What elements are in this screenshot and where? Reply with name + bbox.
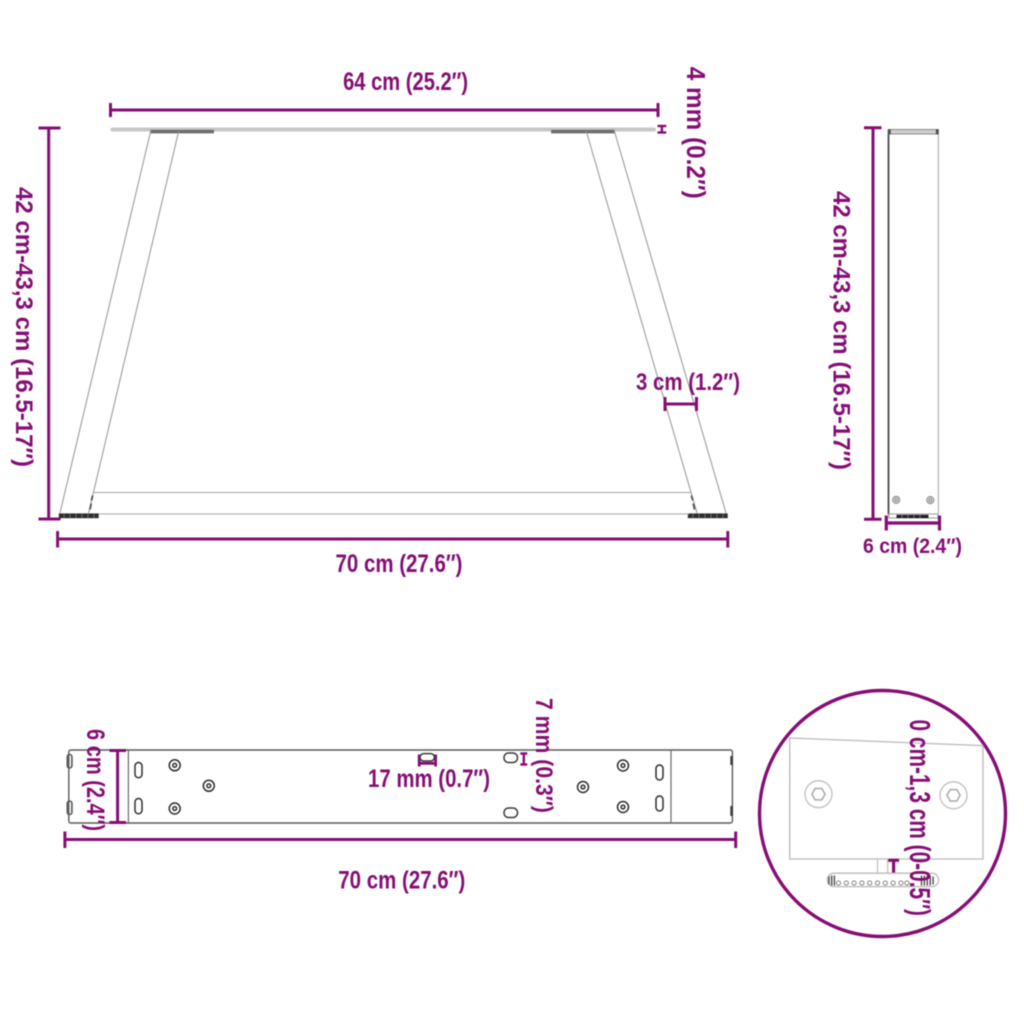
svg-text:6 cm (2.4″): 6 cm (2.4″) [863,534,962,558]
svg-text:7 mm (0.3″): 7 mm (0.3″) [530,698,557,813]
svg-text:3 cm (1.2″): 3 cm (1.2″) [636,369,740,396]
svg-text:17 mm (0.7″): 17 mm (0.7″) [368,765,490,793]
svg-text:42 cm-43,3 cm (16.5-17″): 42 cm-43,3 cm (16.5-17″) [10,187,37,467]
svg-text:4 mm (0.2″): 4 mm (0.2″) [681,67,711,199]
svg-text:64 cm (25.2″): 64 cm (25.2″) [343,68,468,96]
svg-text:6 cm (2.4″): 6 cm (2.4″) [81,729,109,831]
svg-text:70 cm (27.6″): 70 cm (27.6″) [338,867,465,895]
svg-text:0 cm-1,3 cm (0-0.5″): 0 cm-1,3 cm (0-0.5″) [903,720,935,917]
svg-text:42 cm-43,3 cm (16.5-17″): 42 cm-43,3 cm (16.5-17″) [828,191,855,470]
svg-text:70 cm (27.6″): 70 cm (27.6″) [336,550,463,578]
